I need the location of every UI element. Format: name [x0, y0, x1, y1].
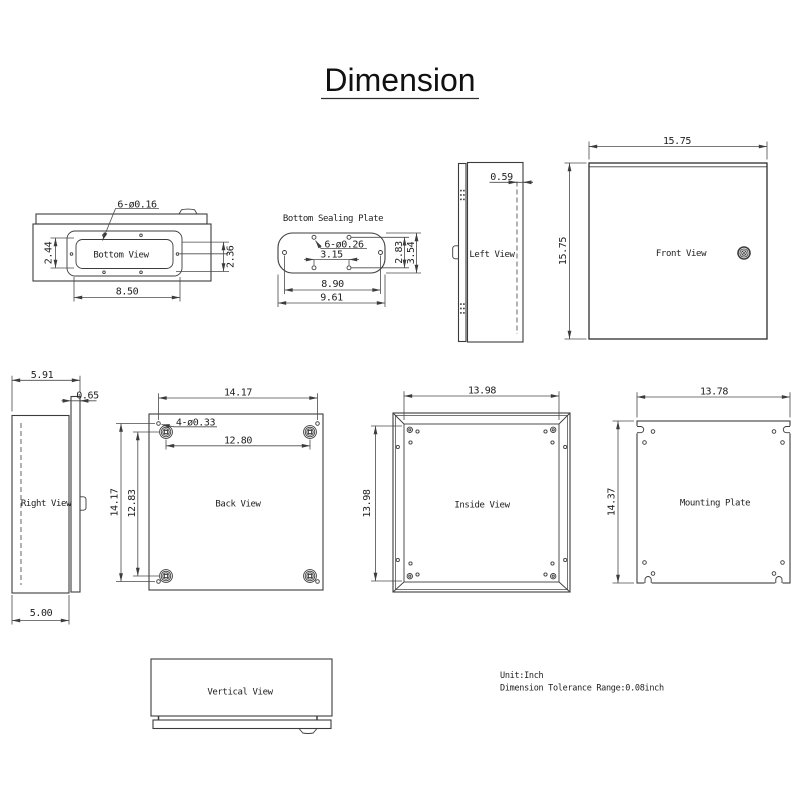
- vertical-view-label: Vertical View: [207, 687, 273, 697]
- stud-ring: [407, 427, 412, 432]
- leader-line: [316, 241, 322, 249]
- boss: [160, 570, 173, 583]
- hinge-dot: [463, 303, 465, 305]
- stud-center: [552, 429, 554, 431]
- lock-icon: [738, 247, 750, 259]
- hinge-dot: [463, 199, 465, 201]
- stud: [407, 427, 412, 432]
- hole: [564, 558, 567, 561]
- boss: [304, 426, 317, 439]
- hole: [157, 422, 161, 426]
- stud: [551, 574, 556, 579]
- hinge-dot: [460, 199, 462, 201]
- hole: [781, 441, 785, 445]
- boss-square: [164, 430, 167, 433]
- drawing-notes: Unit:Inch Dimension Tolerance Range:0.08…: [500, 671, 664, 694]
- dim-inside-height: 13.98: [362, 426, 402, 581]
- back-view-width-value: 14.17: [224, 388, 252, 399]
- bottom-sealing-plate: Bottom Sealing Plate 6-ø0.26 3.15: [278, 214, 421, 307]
- boss-square: [308, 574, 311, 577]
- hole: [643, 441, 647, 445]
- back-view-height-value: 14.17: [110, 488, 121, 516]
- hole: [551, 441, 554, 444]
- hole: [643, 561, 647, 565]
- dim-slot-spacing: 3.15: [304, 250, 359, 265]
- dim-gasket-height: 2.44: [43, 238, 74, 268]
- latch-bump: [453, 246, 459, 259]
- page-title: Dimension: [324, 62, 475, 98]
- bottom-view-side-height-value: 2.36: [225, 245, 236, 268]
- dim-door-offset: 0.59: [490, 172, 534, 183]
- hinge-marks: [460, 190, 465, 314]
- front-view: Front View 15.75 15.75: [558, 136, 767, 339]
- stud-ring: [551, 427, 556, 432]
- sealing-plate-height-value: 3.54: [406, 241, 417, 264]
- hole: [416, 573, 419, 576]
- notch-mask: [644, 582, 651, 584]
- tolerance-note: Dimension Tolerance Range:0.08inch: [500, 684, 664, 694]
- hinge-dot: [460, 190, 462, 192]
- hole: [347, 266, 351, 270]
- hole: [396, 445, 399, 448]
- inside-view-width-value: 13.98: [468, 386, 496, 397]
- dim-mounting-height: 14.37: [607, 421, 634, 583]
- dim-boss-span-height: 12.83: [127, 432, 159, 576]
- notch-mask: [775, 582, 782, 584]
- sealing-plate-hole-span-height-value: 2.83: [394, 241, 405, 264]
- hole: [70, 253, 73, 256]
- bevel-line: [559, 413, 570, 424]
- right-view-door-edge: [71, 397, 80, 593]
- callout-bottom-view-holes: 6-ø0.16: [103, 199, 160, 240]
- bevel-line: [393, 582, 404, 592]
- dim-side-height: 2.36: [176, 242, 236, 271]
- hole: [772, 572, 776, 576]
- right-view-overall-depth-value: 5.91: [31, 370, 54, 381]
- dim-overall-depth: 5.91: [12, 370, 80, 412]
- back-view: 14.17 4-ø0.33 12.80 14.17 12.83 Back Vie…: [110, 388, 323, 591]
- hole: [396, 558, 399, 561]
- bottom-view-label: Bottom View: [93, 251, 149, 261]
- hole: [651, 430, 655, 434]
- right-view: 5.91 0.65 Right View 5.00: [12, 370, 99, 625]
- right-view-body-depth-value: 5.00: [30, 608, 53, 619]
- right-view-label: Right View: [21, 499, 72, 509]
- dim-hole-span-width: 8.90: [285, 256, 381, 295]
- hole: [551, 562, 554, 565]
- boss-ring: [307, 573, 313, 579]
- sealing-plate-hole-span-width-value: 8.90: [321, 279, 344, 290]
- hinge-dot: [460, 303, 462, 305]
- hole: [140, 271, 143, 274]
- boss-ring: [163, 429, 169, 435]
- bottom-view-gasket-width-value: 8.50: [116, 287, 139, 298]
- front-view-label: Front View: [656, 249, 707, 259]
- mounting-plate: 13.78 14.37 Mounting Plate: [607, 387, 792, 585]
- hole: [312, 235, 316, 239]
- hinge-dot: [460, 312, 462, 314]
- dimension-drawing: Dimension Bottom View 6-ø0.16 2.44: [0, 0, 800, 800]
- stud-ring: [407, 574, 412, 579]
- latch-bump: [179, 209, 197, 214]
- hole: [564, 445, 567, 448]
- sealing-plate-label: Bottom Sealing Plate: [283, 214, 383, 224]
- hinge-dot: [463, 194, 465, 196]
- dim-front-width: 15.75: [589, 136, 767, 160]
- hole: [409, 441, 412, 444]
- front-view-height-value: 15.75: [558, 237, 569, 265]
- dim-front-height: 15.75: [558, 163, 586, 339]
- hole: [312, 266, 316, 270]
- bottom-view-gasket-height-value: 2.44: [43, 241, 54, 264]
- hole: [103, 271, 106, 274]
- hole: [544, 573, 547, 576]
- hole: [157, 580, 161, 584]
- inside-view-height-value: 13.98: [362, 489, 373, 517]
- hole: [140, 234, 143, 237]
- mounting-plate-label: Mounting Plate: [680, 498, 750, 508]
- notch-mask: [636, 426, 638, 433]
- bottom-view: Bottom View 6-ø0.16 2.44 2.36 8.50: [33, 199, 236, 301]
- latch-bump: [80, 497, 86, 510]
- stud-center: [409, 429, 411, 431]
- hinge-dot: [460, 194, 462, 196]
- bottom-view-top-strip: [36, 214, 207, 224]
- hole: [283, 251, 287, 255]
- hole: [316, 580, 320, 584]
- leader-line: [103, 209, 116, 241]
- bevel-line: [559, 582, 570, 592]
- boss-square: [164, 574, 167, 577]
- boss: [160, 426, 173, 439]
- unit-note: Unit:Inch: [500, 671, 544, 681]
- dim-mounting-width: 13.78: [637, 387, 790, 418]
- left-view-label: Left View: [469, 250, 515, 260]
- dim-boss-span-width: 12.80: [166, 435, 310, 449]
- hinge-dot: [460, 308, 462, 310]
- front-view-width-value: 15.75: [663, 136, 691, 147]
- stud: [551, 427, 556, 432]
- mounting-plate-height-value: 14.37: [607, 488, 618, 516]
- inside-view-label: Inside View: [454, 500, 510, 510]
- left-view: 0.59 Left View: [453, 163, 533, 343]
- latch-bump: [299, 729, 317, 734]
- boss: [304, 570, 317, 583]
- sealing-plate-slot-spacing-value: 3.15: [320, 250, 343, 261]
- inside-view: 13.98 13.98 Inside View: [362, 386, 570, 593]
- boss-ring: [163, 573, 169, 579]
- dim-body-depth: 5.00: [12, 595, 69, 625]
- hole: [772, 430, 776, 434]
- hinge-dot: [463, 312, 465, 314]
- back-view-label: Back View: [215, 499, 261, 509]
- hole: [781, 561, 785, 565]
- vertical-view: Vertical View: [151, 659, 332, 734]
- hole: [651, 572, 655, 576]
- mounting-plate-width-value: 13.78: [700, 387, 728, 398]
- back-view-boss-span-width-value: 12.80: [224, 435, 252, 446]
- stud-center: [552, 575, 554, 577]
- sealing-plate-width-value: 9.61: [320, 292, 343, 303]
- vertical-view-base-strip: [153, 720, 331, 729]
- dim-back-width: 14.17: [159, 388, 318, 421]
- left-view-door-offset-value: 0.59: [490, 172, 513, 183]
- bevel-line: [393, 413, 404, 424]
- hole: [316, 422, 320, 426]
- dim-inside-width: 13.98: [404, 386, 559, 421]
- notch-mask: [789, 426, 791, 433]
- boss-square: [308, 430, 311, 433]
- hole: [176, 253, 179, 256]
- hinge-dot: [463, 308, 465, 310]
- left-view-flange: [459, 164, 467, 342]
- dimension-drawing-page: Dimension Bottom View 6-ø0.16 2.44: [0, 0, 800, 800]
- hole: [416, 430, 419, 433]
- back-view-boss-span-height-value: 12.83: [127, 489, 138, 517]
- dim-door-thickness: 0.65: [62, 390, 100, 401]
- hole: [544, 430, 547, 433]
- stud-center: [409, 575, 411, 577]
- hole: [409, 562, 412, 565]
- hinge-dot: [463, 190, 465, 192]
- right-view-door-thickness-value: 0.65: [76, 390, 99, 401]
- stud-ring: [551, 574, 556, 579]
- boss-ring: [307, 429, 313, 435]
- hole: [379, 251, 383, 255]
- stud: [407, 574, 412, 579]
